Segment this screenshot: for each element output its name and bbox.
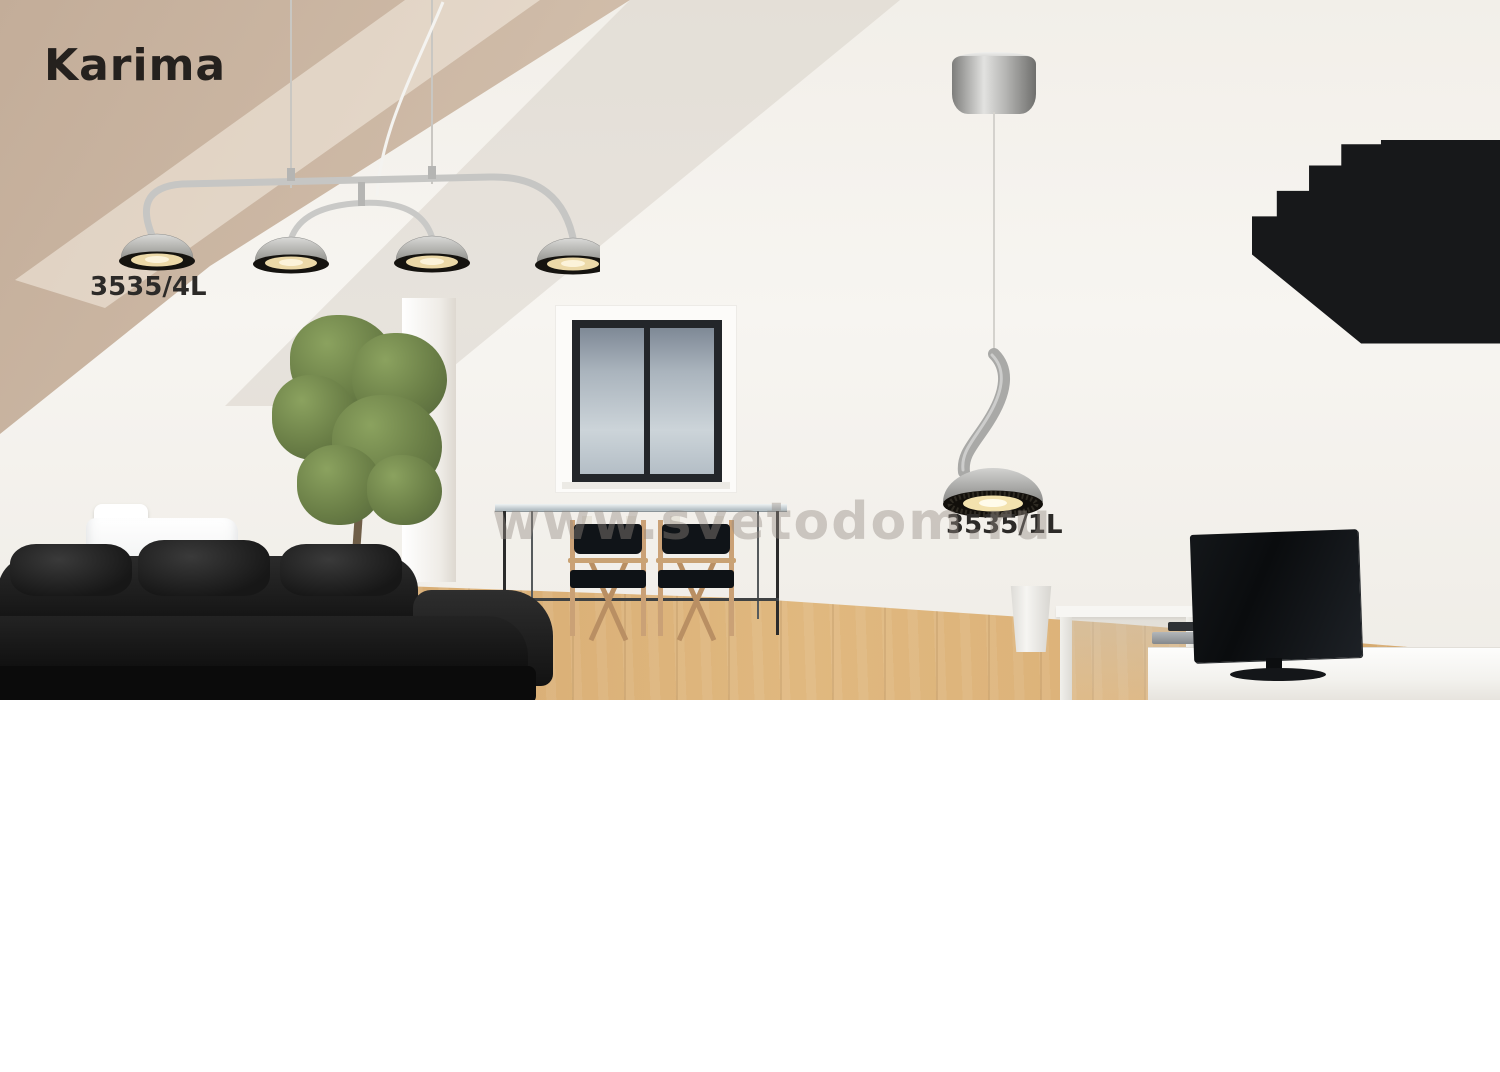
lamp-inner-arc	[291, 203, 432, 239]
chair-seat	[658, 570, 734, 588]
window-sill	[562, 482, 730, 489]
collection-title: Karima	[44, 40, 226, 91]
sofa-cushion	[280, 544, 402, 596]
chair-armrest	[568, 558, 648, 563]
lamp-center-stub	[358, 182, 365, 206]
lamp-shade	[119, 234, 195, 271]
lamp-canopy	[952, 56, 1036, 114]
sofa-cushion	[138, 540, 270, 596]
pendant-lamp-4l	[70, 128, 600, 283]
catalog-spread: Karima 3535/4L 3535/1L www.svetodom.ru 3…	[0, 0, 1500, 1072]
chair-armrest	[656, 558, 736, 563]
lamp-suspension-wire	[993, 112, 995, 354]
side-table	[1056, 606, 1204, 617]
watermark: www.svetodom.ru	[492, 492, 1053, 552]
sofa-front	[0, 666, 536, 700]
tv-stand-base	[1230, 668, 1326, 681]
lamp-shade	[394, 236, 470, 273]
chair-seat	[570, 570, 646, 588]
window-pane	[580, 328, 644, 474]
lamp-shade	[535, 238, 600, 275]
interior-photo: Karima 3535/4L 3535/1L www.svetodom.ru	[0, 0, 1500, 700]
photo-label-4l: 3535/4L	[90, 272, 207, 302]
tv	[1190, 529, 1362, 663]
spec-section: 3535 арматураметалл покрытиематовый нике…	[0, 700, 1500, 1072]
leather-sofa	[0, 538, 568, 700]
lamp-neck	[964, 354, 1004, 472]
window-pane	[650, 328, 714, 474]
lamp-shade	[253, 237, 329, 274]
plant-foliage	[367, 455, 442, 525]
lamp-wire-mount	[428, 166, 436, 179]
sofa-cushion	[10, 544, 132, 596]
lamp-wire-mount	[287, 168, 295, 181]
side-table-leg	[1060, 617, 1072, 700]
